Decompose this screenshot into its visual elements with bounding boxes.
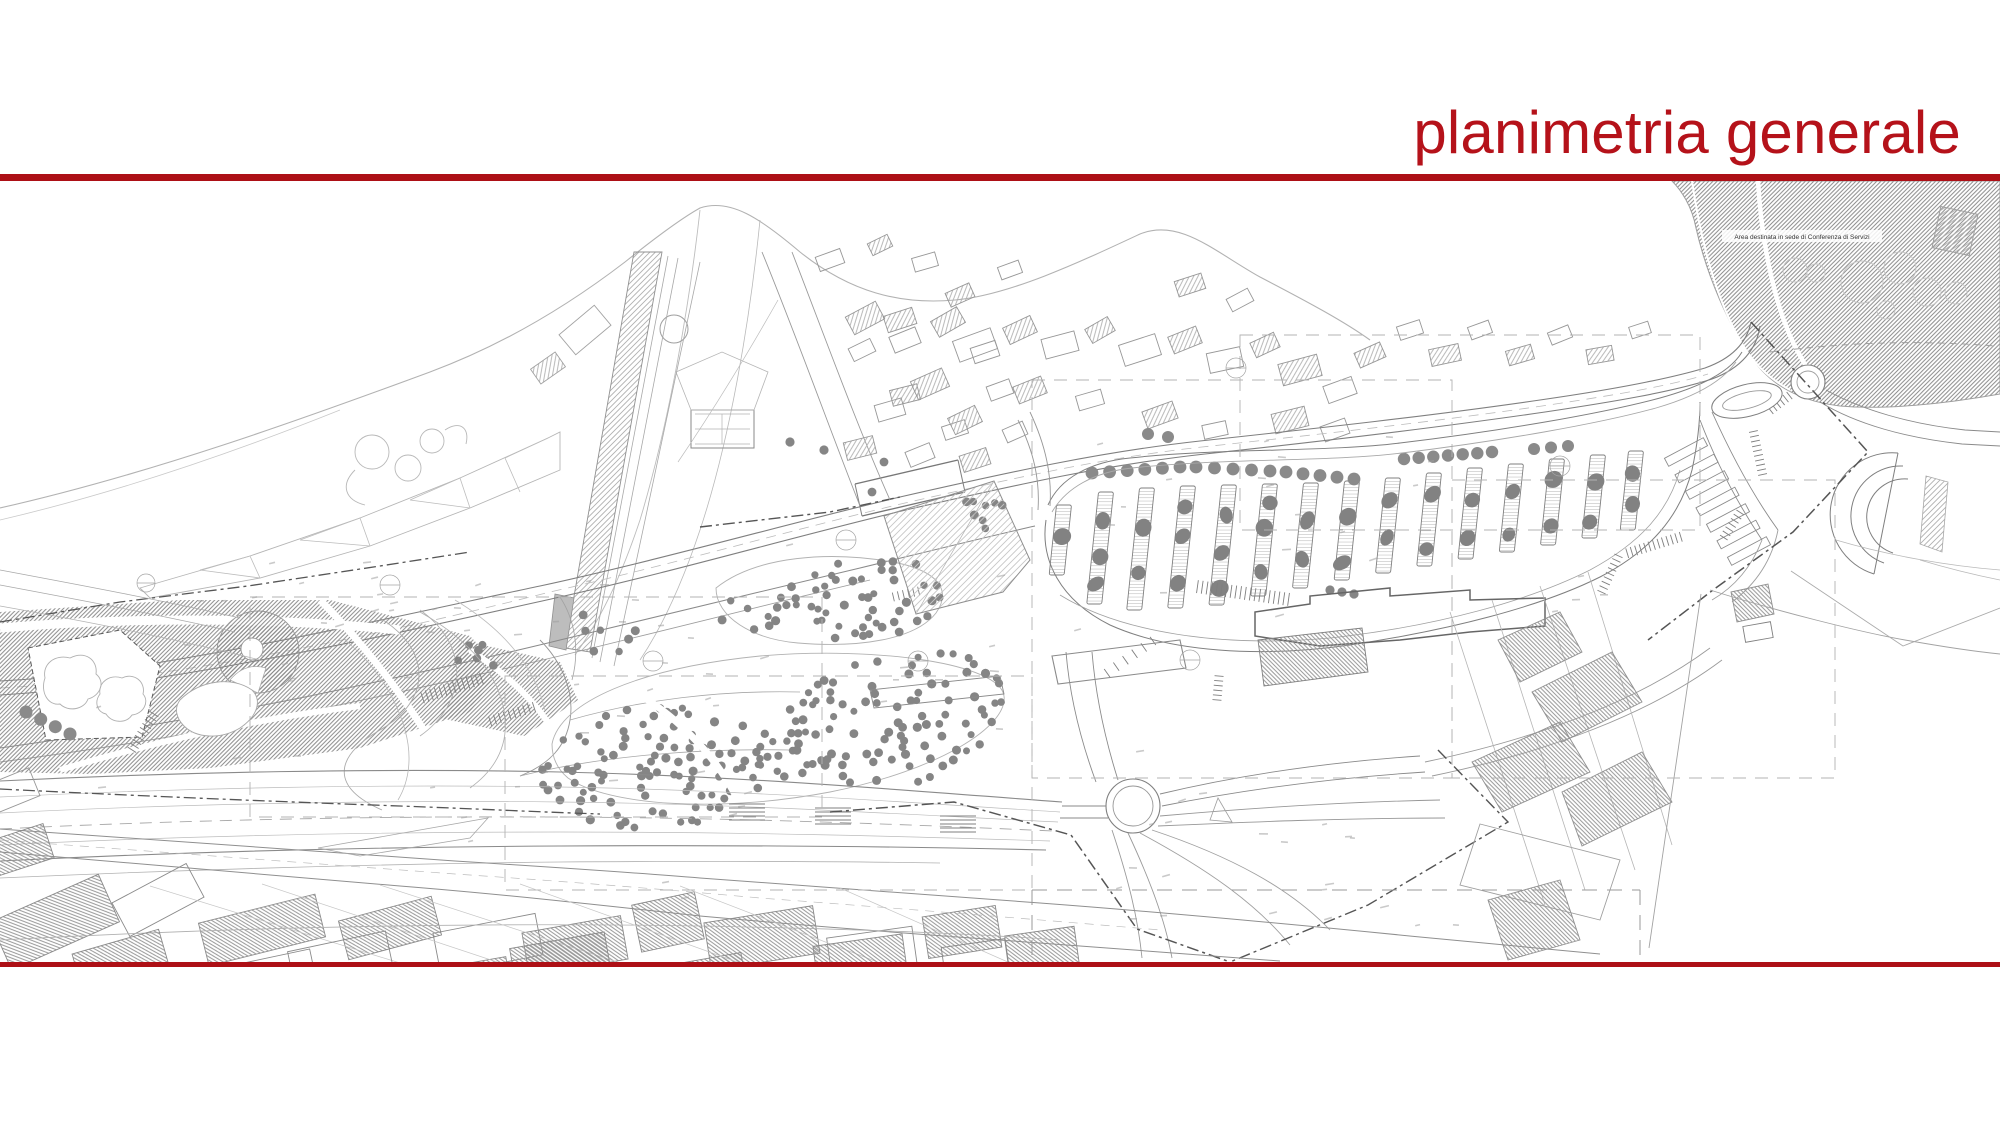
svg-text:Area destinata in sede di Conf: Area destinata in sede di Conferenza di … bbox=[1734, 234, 1869, 241]
